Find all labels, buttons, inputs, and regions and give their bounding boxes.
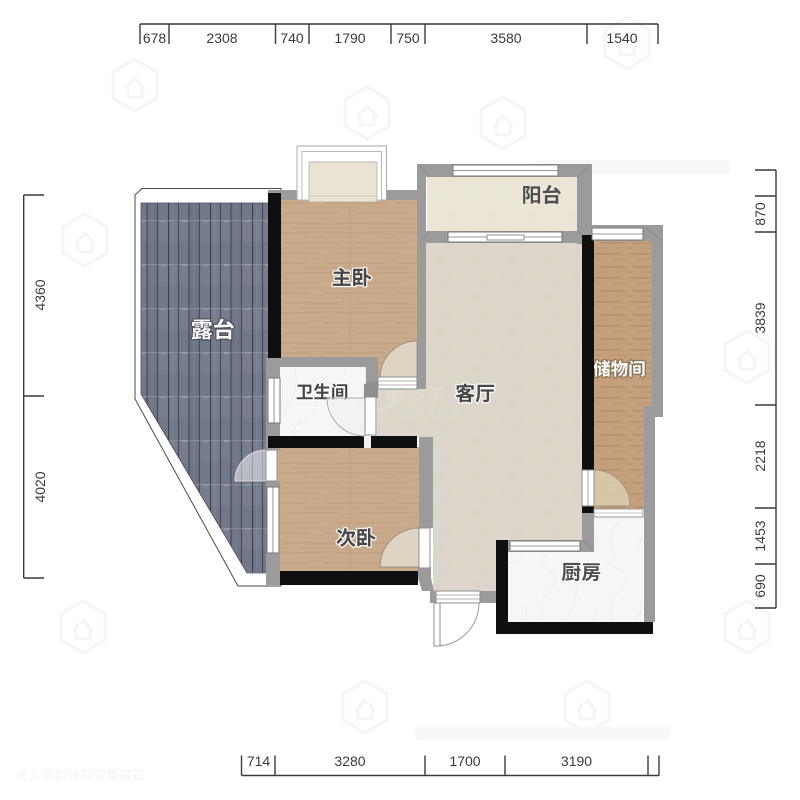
- svg-text:4020: 4020: [32, 471, 48, 502]
- svg-text:690: 690: [752, 574, 768, 598]
- svg-text:3190: 3190: [561, 753, 592, 769]
- svg-text:2218: 2218: [752, 440, 768, 471]
- svg-text:1700: 1700: [449, 753, 480, 769]
- svg-text:740: 740: [280, 30, 304, 46]
- svg-text:870: 870: [752, 202, 768, 226]
- svg-text:1453: 1453: [752, 520, 768, 551]
- svg-text:750: 750: [396, 30, 420, 46]
- svg-text:3280: 3280: [334, 753, 365, 769]
- svg-text:3580: 3580: [490, 30, 521, 46]
- svg-text:1790: 1790: [334, 30, 365, 46]
- svg-text:2308: 2308: [206, 30, 237, 46]
- svg-text:3839: 3839: [752, 302, 768, 333]
- svg-text:4360: 4360: [32, 279, 48, 310]
- svg-text:KUJIALE.COM: KUJIALE.COM: [394, 409, 461, 420]
- svg-text:714: 714: [247, 753, 271, 769]
- svg-text:678: 678: [143, 30, 167, 46]
- svg-text:1540: 1540: [606, 30, 637, 46]
